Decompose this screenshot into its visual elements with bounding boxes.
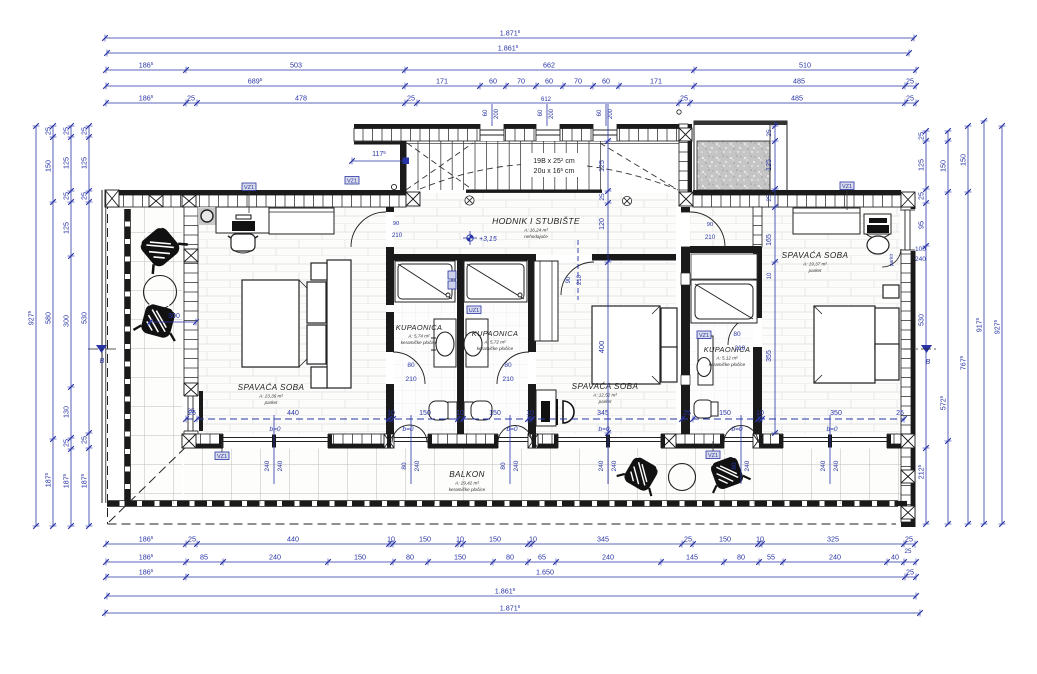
svg-text:80: 80 [731, 462, 738, 470]
svg-text:345: 345 [597, 534, 609, 543]
svg-text:80: 80 [506, 552, 514, 561]
svg-text:210: 210 [392, 232, 403, 239]
svg-text:150: 150 [354, 552, 366, 561]
svg-text:10: 10 [387, 410, 395, 417]
svg-text:85: 85 [200, 552, 208, 561]
svg-text:10: 10 [756, 410, 764, 417]
svg-text:keramičke pločice: keramičke pločice [709, 362, 746, 367]
svg-text:80: 80 [406, 552, 414, 561]
svg-text:65: 65 [538, 552, 546, 561]
svg-text:25: 25 [916, 192, 925, 200]
svg-text:nehodajuće: nehodajuće [524, 234, 548, 239]
svg-text:25: 25 [906, 567, 914, 576]
svg-text:SPAVAĆA SOBA: SPAVAĆA SOBA [572, 381, 639, 391]
svg-text:keramičke pločice: keramičke pločice [449, 487, 486, 492]
svg-text:10: 10 [526, 410, 534, 417]
svg-text:25: 25 [905, 534, 913, 543]
svg-text:25: 25 [599, 193, 606, 201]
svg-text:25: 25 [680, 93, 688, 102]
svg-text:A: 5,74 m²: A: 5,74 m² [407, 334, 430, 339]
svg-text:25: 25 [766, 194, 773, 202]
svg-text:150: 150 [719, 534, 731, 543]
svg-text:530: 530 [916, 314, 925, 326]
svg-text:VZ1: VZ1 [842, 184, 852, 190]
svg-text:25: 25 [61, 127, 70, 135]
svg-text:300: 300 [61, 315, 70, 327]
svg-text:10: 10 [387, 534, 395, 543]
svg-text:1.8715: 1.8715 [500, 603, 521, 612]
svg-text:1.650: 1.650 [536, 567, 554, 576]
svg-text:25: 25 [896, 410, 904, 417]
svg-text:A: 12,52 m²: A: 12,52 m² [592, 393, 617, 398]
svg-text:25: 25 [188, 410, 196, 417]
svg-text:150: 150 [958, 154, 967, 166]
svg-text:40: 40 [891, 552, 899, 561]
svg-text:1.8615: 1.8615 [498, 43, 519, 52]
svg-text:KUPAONICA: KUPAONICA [396, 323, 443, 332]
svg-text:parket: parket [598, 399, 612, 404]
svg-text:125: 125 [766, 159, 773, 171]
svg-text:HODNIK I STUBIŠTE: HODNIK I STUBIŠTE [492, 216, 580, 226]
svg-text:150: 150 [419, 534, 431, 543]
svg-text:b=0: b=0 [402, 426, 413, 433]
svg-text:150: 150 [938, 160, 947, 172]
svg-text:60: 60 [602, 76, 610, 85]
svg-text:80: 80 [401, 462, 408, 470]
svg-text:240: 240 [598, 460, 605, 471]
svg-text:60: 60 [489, 76, 497, 85]
svg-text:80: 80 [407, 362, 415, 369]
svg-text:VZ1: VZ1 [347, 178, 357, 184]
svg-text:240: 240 [269, 552, 281, 561]
svg-text:510: 510 [799, 60, 811, 69]
svg-text:145: 145 [686, 552, 698, 561]
svg-text:478: 478 [295, 93, 307, 102]
svg-text:25: 25 [79, 436, 88, 444]
svg-text:240: 240 [611, 460, 618, 471]
svg-text:240: 240 [277, 460, 284, 471]
svg-text:165: 165 [766, 234, 773, 246]
svg-text:b=0: b=0 [506, 426, 517, 433]
svg-text:125: 125 [916, 159, 925, 171]
svg-text:20u x 165 cm: 20u x 165 cm [534, 167, 575, 175]
svg-text:240: 240 [820, 460, 827, 471]
svg-text:25: 25 [906, 93, 914, 102]
svg-text:VZ1: VZ1 [699, 333, 709, 339]
svg-text:125: 125 [79, 157, 88, 169]
svg-text:125: 125 [61, 157, 70, 169]
svg-text:25: 25 [79, 127, 88, 135]
svg-text:+3,15: +3,15 [479, 236, 497, 243]
svg-text:10: 10 [529, 534, 537, 543]
svg-text:90: 90 [393, 221, 399, 227]
svg-text:210: 210 [405, 376, 417, 383]
svg-text:25: 25 [407, 93, 415, 102]
svg-text:171: 171 [436, 76, 448, 85]
svg-text:60: 60 [597, 109, 603, 116]
svg-text:25: 25 [61, 192, 70, 200]
svg-text:210: 210 [577, 274, 583, 285]
svg-text:10: 10 [756, 534, 764, 543]
svg-text:BALKON: BALKON [449, 470, 485, 479]
svg-text:171: 171 [650, 76, 662, 85]
svg-text:150: 150 [719, 410, 731, 417]
svg-text:19B x 252 cm: 19B x 252 cm [533, 157, 575, 165]
svg-text:612: 612 [541, 97, 552, 103]
svg-text:60: 60 [545, 76, 553, 85]
svg-text:210: 210 [502, 376, 514, 383]
svg-text:B: B [926, 359, 931, 366]
svg-text:b=0: b=0 [269, 426, 280, 433]
svg-text:240: 240 [829, 552, 841, 561]
svg-text:125: 125 [599, 160, 606, 172]
svg-text:keramičke pločice: keramičke pločice [401, 340, 438, 345]
svg-text:150: 150 [454, 552, 466, 561]
svg-text:10: 10 [456, 410, 464, 417]
svg-text:80: 80 [733, 331, 741, 338]
svg-text:90: 90 [707, 222, 713, 228]
svg-text:130: 130 [61, 406, 70, 418]
svg-text:240: 240 [744, 460, 751, 471]
svg-text:125: 125 [61, 222, 70, 234]
svg-text:350: 350 [830, 410, 842, 417]
svg-text:A: 5,12 m²: A: 5,12 m² [715, 356, 738, 361]
svg-text:345: 345 [597, 410, 609, 417]
svg-text:240: 240 [414, 460, 421, 471]
svg-text:300: 300 [168, 313, 180, 320]
svg-text:440: 440 [287, 410, 299, 417]
svg-text:25: 25 [187, 93, 195, 102]
svg-text:70: 70 [517, 76, 525, 85]
svg-text:SPAVAĆA SOBA: SPAVAĆA SOBA [782, 250, 849, 260]
svg-text:150: 150 [419, 410, 431, 417]
svg-text:240: 240 [833, 460, 840, 471]
svg-text:150: 150 [489, 534, 501, 543]
svg-text:95: 95 [916, 221, 925, 229]
svg-text:25: 25 [683, 410, 691, 417]
svg-text:240: 240 [915, 256, 926, 263]
svg-text:150: 150 [489, 410, 501, 417]
svg-text:240: 240 [602, 552, 614, 561]
svg-text:10: 10 [456, 534, 464, 543]
svg-text:25: 25 [916, 132, 925, 140]
svg-text:25: 25 [43, 127, 52, 135]
svg-text:B: B [100, 358, 105, 365]
svg-text:485: 485 [793, 76, 805, 85]
svg-text:25: 25 [905, 548, 912, 555]
svg-text:210: 210 [735, 345, 746, 352]
svg-text:25: 25 [61, 439, 70, 447]
svg-text:90: 90 [566, 276, 572, 283]
svg-text:80: 80 [504, 362, 512, 369]
svg-text:60: 60 [483, 109, 489, 116]
svg-text:VZ1: VZ1 [244, 185, 254, 191]
svg-text:70: 70 [574, 76, 582, 85]
svg-text:25: 25 [684, 534, 692, 543]
svg-text:530: 530 [79, 312, 88, 324]
svg-text:parket: parket [808, 268, 822, 273]
svg-text:150: 150 [43, 160, 52, 172]
svg-text:55: 55 [767, 552, 775, 561]
svg-text:A: 19,37 m²: A: 19,37 m² [802, 262, 827, 267]
svg-text:325: 325 [827, 534, 839, 543]
svg-text:A: 29,42 m²: A: 29,42 m² [454, 481, 479, 486]
svg-text:503: 503 [290, 60, 302, 69]
svg-text:240: 240 [264, 460, 271, 471]
svg-text:662: 662 [543, 60, 555, 69]
svg-text:80: 80 [500, 462, 507, 470]
svg-text:b=0: b=0 [826, 426, 837, 433]
svg-text:A: 5,72 m²: A: 5,72 m² [483, 340, 506, 345]
svg-text:240: 240 [513, 460, 520, 471]
svg-text:KUPAONICA: KUPAONICA [472, 329, 519, 338]
svg-text:parkir: parkir [889, 253, 895, 266]
svg-text:200: 200 [608, 108, 614, 119]
svg-text:200: 200 [494, 108, 500, 119]
svg-text:440: 440 [287, 534, 299, 543]
svg-text:485: 485 [791, 93, 803, 102]
svg-text:580: 580 [43, 312, 52, 324]
svg-text:VZ1: VZ1 [708, 453, 718, 459]
svg-text:120: 120 [599, 218, 606, 230]
svg-text:25: 25 [79, 192, 88, 200]
svg-text:UZ1: UZ1 [469, 308, 479, 314]
svg-text:200: 200 [549, 108, 555, 119]
svg-text:keramičke pločice: keramičke pločice [477, 346, 514, 351]
svg-text:210: 210 [705, 234, 716, 241]
svg-text:400: 400 [597, 341, 606, 354]
svg-text:60: 60 [538, 109, 544, 116]
svg-text:A: 16,24 m²: A: 16,24 m² [523, 228, 548, 233]
svg-text:355: 355 [766, 350, 773, 362]
svg-text:1.8615: 1.8615 [495, 586, 516, 595]
svg-text:25: 25 [766, 129, 773, 137]
svg-text:25: 25 [906, 76, 914, 85]
svg-text:25: 25 [188, 534, 196, 543]
svg-text:VZ1: VZ1 [217, 454, 227, 460]
svg-text:parket: parket [264, 400, 278, 405]
svg-text:A: 23,36 m²: A: 23,36 m² [258, 394, 283, 399]
svg-text:SPAVAĆA SOBA: SPAVAĆA SOBA [238, 382, 305, 392]
svg-text:1.8715: 1.8715 [500, 28, 521, 37]
svg-text:80: 80 [737, 552, 745, 561]
